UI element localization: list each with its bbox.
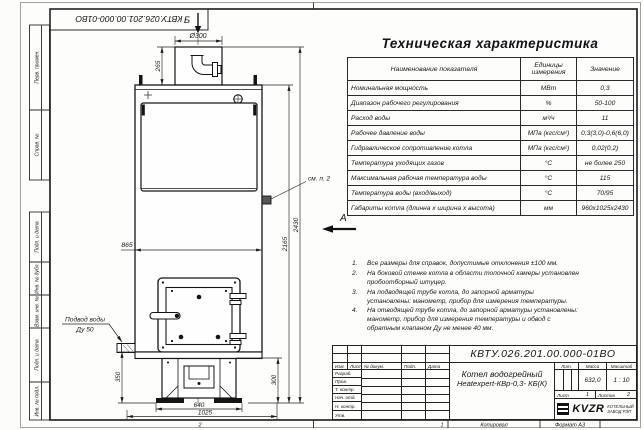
view-b-label: Б [184,15,190,26]
margin-label-inv-podl: Инв. № подл. [35,385,41,416]
company-name: КОТЕЛЬНЫЙ ЗАВОД РЭП [607,404,633,414]
spec-cell-value: 0,3(3,0)-0,6(6,0) [577,126,634,141]
foot-pad-left [156,398,184,403]
margin-label-perv-primen: Перв. примен. [35,50,41,83]
note-item: 2. На боковой стенке котла в области топ… [352,270,602,288]
spec-cell-unit: °С [521,171,577,186]
drawing-sheet: Перв. примен. Справ. № Подп. и дата Инв.… [0,0,644,430]
tb-mass-value: 632,0 [578,369,607,391]
zone-2-label: 2 [197,423,201,429]
spec-cell-unit: % [521,96,577,111]
spec-cell-name: Максимальная рабочая температура воды [348,171,521,186]
spec-row: Диапазон рабочего регулирования%50-100 [348,96,634,111]
margin-label-inv-dubl: Инв. № дубл. [35,263,41,294]
technical-characteristics: Техническая характеристика Наименование … [347,36,633,216]
note-item: 1. Все размеры для справок, допустимые о… [352,260,602,269]
spec-cell-unit: °С [521,186,577,201]
spec-col-value: Значение [577,58,634,81]
dim-body-width-label: 865 [121,242,133,249]
company-name-line2: ЗАВОД РЭП [607,409,633,414]
dim-base-height-right-label: 300 [271,374,278,385]
spec-cell-name: Температура уходящих газов [348,156,521,171]
notes-list: 1. Все размеры для справок, допустимые о… [352,260,602,335]
spec-header-row: Наименование показателя Единицы измерени… [348,58,634,81]
water-inlet-label-1: Подвод воды [65,316,105,324]
spec-cell-unit: МПа (кгс/см²) [521,126,577,141]
lifting-lug-right [254,75,258,85]
spec-cell-name: Габариты котла (длинна х ширина х высота… [348,201,521,216]
spec-cell-unit: °С [521,156,577,171]
tb-doc-number: КВТУ.026.201.00.000-01ВО [449,345,637,363]
spec-col-name: Наименование показателя [348,58,521,81]
spec-cell-name: Расход воды [348,111,521,126]
foot-pad-right [214,398,242,403]
water-inlet-fitting [117,344,135,353]
dim-base-width-label: 1025 [198,410,213,417]
spec-row: Температура воды (вход/выход)°С70/95 [348,186,634,201]
spec-cell-value: 70/95 [577,186,634,201]
spec-cell-name: Номинальная мощность [348,81,521,96]
title-block: Изм. Лист № докум. Подп. Дата Разраб. Пр… [332,345,637,420]
spec-cell-value: 11 [577,111,634,126]
furnace-door [150,278,246,352]
tb-product-line2: Heatexpert-КВр-0,3- КБ(К) [457,379,547,388]
note-text: На боковой стенке котла в области топочн… [367,270,579,288]
spec-cell-value: 50-100 [577,96,634,111]
note-text: На отводящей трубе котла, до запорной ар… [367,307,579,334]
note-item: 4. На отводящей трубе котла, до запорной… [352,307,602,334]
margin-label-sprav-no: Справ. № [35,133,41,156]
spec-cell-name: Рабочее давление воды [348,126,521,141]
note-number: 3. [352,289,367,307]
base-pedestal [156,359,242,404]
top-docnumber-text: КВТУ.026.201.00.000-01ВО [75,14,182,24]
spec-row: Максимальная рабочая температура воды°С1… [348,171,634,186]
copied-label: Копировал [480,423,507,429]
spec-cell-unit: МПа (кгс/см²) [521,141,577,156]
note-number: 2. [352,270,367,288]
spec-cell-value: 115 [577,171,634,186]
dim-body-height-label: 2165 [282,236,289,252]
zone-1-label: 1 [440,423,443,429]
tb-role-utv: Утв. [332,410,362,420]
lifting-lug-left [139,75,143,85]
spec-cell-value: 0,3 [577,81,634,96]
bottom-plate [135,352,262,359]
kvzr-logo-icon [557,403,569,415]
dim-flue-height-label: 265 [155,60,162,72]
door-handle [150,313,180,320]
margin-label-podp-data-2: Подп. и дата [35,339,41,371]
upper-panel [141,103,257,191]
dim-base-height-label: 350 [115,371,122,382]
tb-company-cell: KVZR КОТЕЛЬНЫЙ ЗАВОД РЭП [554,398,637,420]
spec-cell-value: 960х1025х2430 [577,201,634,216]
spec-cell-name: Температура воды (вход/выход) [348,186,521,201]
tb-sheet-label: Лист [557,393,569,398]
dim-flue-diameter-label: Ø300 [188,33,206,40]
spec-row: Габариты котла (длинна х ширина х высота… [348,201,634,216]
note-number: 4. [352,307,367,334]
margin-label-podp-data-1: Подп. и дата [35,221,41,253]
spec-row: Температура уходящих газов°Сне более 250 [348,156,634,171]
flue-collar [175,47,222,85]
spec-title: Техническая характеристика [347,36,633,51]
spec-cell-name: Диапазон рабочего регулирования [348,96,521,111]
format-label: Формат А3 [555,423,586,429]
dim-total-height-label: 2430 [293,217,300,233]
tb-sheets-label: Листов [598,393,615,398]
margin-label-vzam-inv: Взам. инв. № [35,295,41,327]
note-text: На подводящей трубе котла, до запорной а… [367,289,579,307]
note-item: 3. На подводящей трубе котла, до запорно… [352,289,602,307]
spec-col-units: Единицы измерения [521,58,577,81]
sampling-callout-label: см. п. 2 [308,176,331,183]
spec-row: Рабочее давление водыМПа (кгс/см²)0,3(3,… [348,126,634,141]
spec-row: Номинальная мощностьМВт0,3 [348,81,634,96]
note-number: 1. [352,260,367,269]
spec-cell-value: не более 250 [577,156,634,171]
dim-feet-width-label: 640 [194,402,205,409]
water-inlet-label-2: Ду 50 [75,327,94,334]
spec-cell-unit: мм [521,201,577,216]
tb-product-name: Котел водогрейный Heatexpert-КВр-0,3- КБ… [449,362,555,420]
spec-cell-unit: МВт [521,81,577,96]
spec-row: Расход водым³/ч11 [348,111,634,126]
tb-scale-value: 1 : 10 [606,369,637,391]
spec-cell-value: 0,02(0,2) [577,141,634,156]
spec-table: Наименование показателя Единицы измерени… [347,57,634,216]
note-text: Все размеры для справок, допустимые откл… [367,260,579,269]
kvzr-logo-text: KVZR [572,403,604,415]
spec-cell-name: Гидравлическое сопротивление котла [348,141,521,156]
tb-product-line1: Котел водогрейный [462,369,543,379]
view-a-label: А [339,213,347,224]
spec-cell-unit: м³/ч [521,111,577,126]
spec-row: Гидравлическое сопротивление котлаМПа (к… [348,141,634,156]
